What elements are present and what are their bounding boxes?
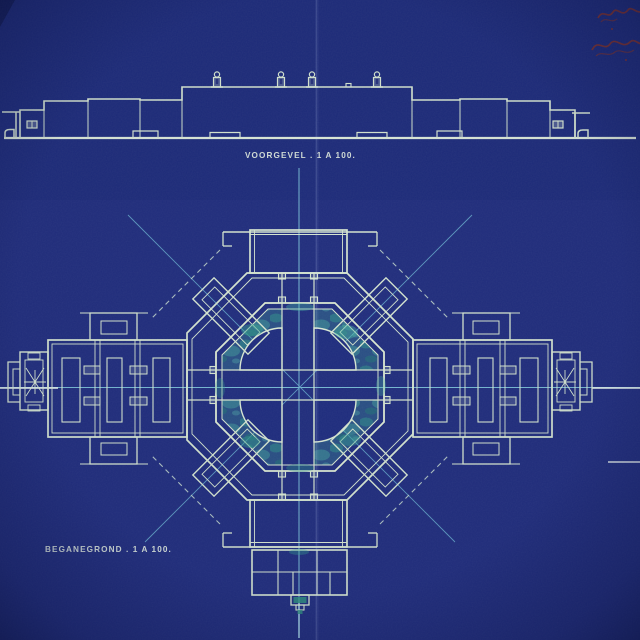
blueprint-sheet: VOORGEVEL . 1 A 100. (0, 0, 640, 640)
vignette-shading (0, 0, 640, 640)
